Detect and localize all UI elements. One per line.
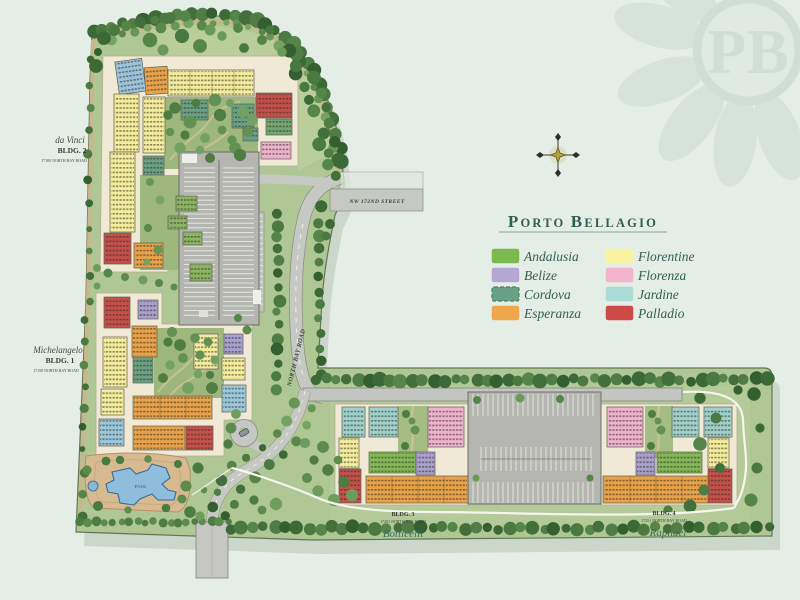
- svg-text:Andalusia: Andalusia: [523, 249, 579, 264]
- svg-text:NW 172ND STREET: NW 172ND STREET: [348, 199, 404, 205]
- svg-text:17100 NORTH BAY ROAD: 17100 NORTH BAY ROAD: [41, 158, 87, 163]
- svg-text:BLDG. 3: BLDG. 3: [391, 512, 414, 518]
- svg-text:da Vinci: da Vinci: [55, 135, 85, 145]
- svg-text:Esperanza: Esperanza: [523, 306, 581, 321]
- svg-text:Raphael: Raphael: [649, 527, 687, 539]
- svg-text:BLDG. 1: BLDG. 1: [46, 356, 75, 365]
- svg-text:BLDG. 2: BLDG. 2: [58, 146, 87, 155]
- svg-text:Palladio: Palladio: [637, 306, 685, 321]
- svg-text:Botticelli: Botticelli: [383, 528, 423, 540]
- svg-text:POOL: POOL: [135, 484, 148, 489]
- svg-text:Belize: Belize: [524, 268, 557, 283]
- svg-text:17201 NORTH BAY ROAD: 17201 NORTH BAY ROAD: [380, 519, 426, 524]
- svg-text:Florentine: Florentine: [637, 249, 695, 264]
- svg-text:BLDG. 4: BLDG. 4: [652, 511, 675, 517]
- svg-text:17150 NORTH BAY ROAD: 17150 NORTH BAY ROAD: [33, 368, 79, 373]
- svg-text:PB: PB: [707, 16, 789, 87]
- svg-text:Jardine: Jardine: [638, 287, 679, 302]
- svg-text:Michelangelo: Michelangelo: [32, 345, 83, 355]
- svg-text:Florenza: Florenza: [637, 268, 686, 283]
- svg-text:17251 NORTH BAY ROAD: 17251 NORTH BAY ROAD: [641, 518, 687, 523]
- svg-text:Cordova: Cordova: [524, 287, 571, 302]
